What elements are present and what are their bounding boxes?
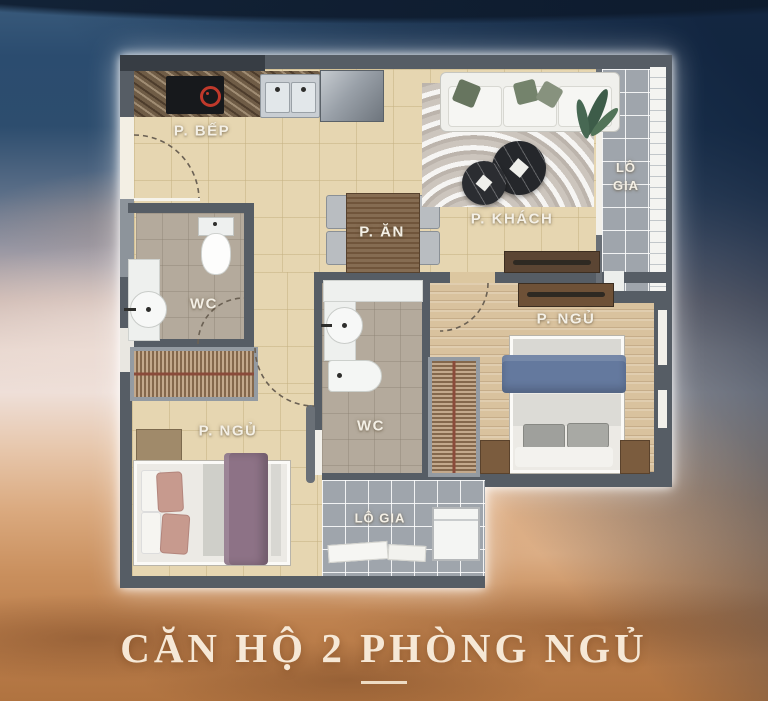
dresser xyxy=(518,283,614,307)
living-label: P. KHÁCH xyxy=(471,211,554,228)
title-divider xyxy=(361,681,407,684)
vanity-counter xyxy=(323,280,423,302)
bedroom2-label: P. NGỦ xyxy=(199,423,258,440)
wardrobe-bedroom2 xyxy=(130,347,258,401)
master-window-upper xyxy=(658,310,667,365)
washing-machine xyxy=(432,507,480,561)
pillow xyxy=(567,423,609,448)
loggia-right-label: LÔ GIA xyxy=(613,159,639,195)
kitchen-sink xyxy=(260,74,320,118)
kitchen-label: P. BẾP xyxy=(174,123,230,140)
nightstand xyxy=(136,429,182,463)
poster-title: CĂN HỘ 2 PHÒNG NGỦ xyxy=(0,624,768,672)
hallway-floor xyxy=(250,272,314,402)
balcony-rail xyxy=(650,67,666,293)
nightstand xyxy=(620,440,650,474)
tv-console xyxy=(504,251,600,273)
floorplan-walls: P. BẾP P. ĂN P. KHÁCH LÔ GIA WC WC P. NG… xyxy=(120,55,672,588)
door-leaf xyxy=(306,405,315,483)
plant xyxy=(572,85,616,149)
bed-blanket-purple xyxy=(224,453,268,565)
wc1-label: WC xyxy=(190,296,218,313)
poster-background: P. BẾP P. ĂN P. KHÁCH LÔ GIA WC WC P. NG… xyxy=(0,0,768,701)
cooktop xyxy=(166,76,224,114)
wc2-label: WC xyxy=(357,418,385,435)
pillow xyxy=(523,424,565,449)
pillow-pink xyxy=(156,471,184,512)
coffee-table-small xyxy=(462,161,506,205)
burner-icon xyxy=(200,86,221,107)
pillow-pink xyxy=(160,513,191,555)
toilet xyxy=(198,217,232,275)
master-window-lower xyxy=(658,390,667,428)
loggia-bottom-label: LÔ GIA xyxy=(355,511,406,526)
wc1-right-wall xyxy=(244,213,254,349)
wc2-door-opening xyxy=(314,430,322,475)
entrance-opening xyxy=(120,117,134,199)
poster-title-block: CĂN HỘ 2 PHÒNG NGỦ xyxy=(0,624,768,684)
top-wall-dark-segment xyxy=(120,55,265,71)
kitchen-counter xyxy=(134,71,320,117)
wc1-top-wall xyxy=(128,203,254,213)
master-door-opening xyxy=(450,272,495,283)
pillow xyxy=(141,512,161,554)
bed-blanket-blue xyxy=(502,355,626,393)
loggia-shelf xyxy=(388,544,427,562)
wardrobe-master xyxy=(428,357,480,477)
floorplan: P. BẾP P. ĂN P. KHÁCH LÔ GIA WC WC P. NG… xyxy=(120,55,672,588)
washbasin xyxy=(130,291,167,328)
washbasin xyxy=(326,307,363,344)
nightstand xyxy=(480,440,510,474)
dining-label: P. ĂN xyxy=(359,224,405,241)
master-bedroom-label: P. NGỦ xyxy=(537,311,596,328)
toilet xyxy=(328,360,382,392)
refrigerator xyxy=(320,70,384,122)
